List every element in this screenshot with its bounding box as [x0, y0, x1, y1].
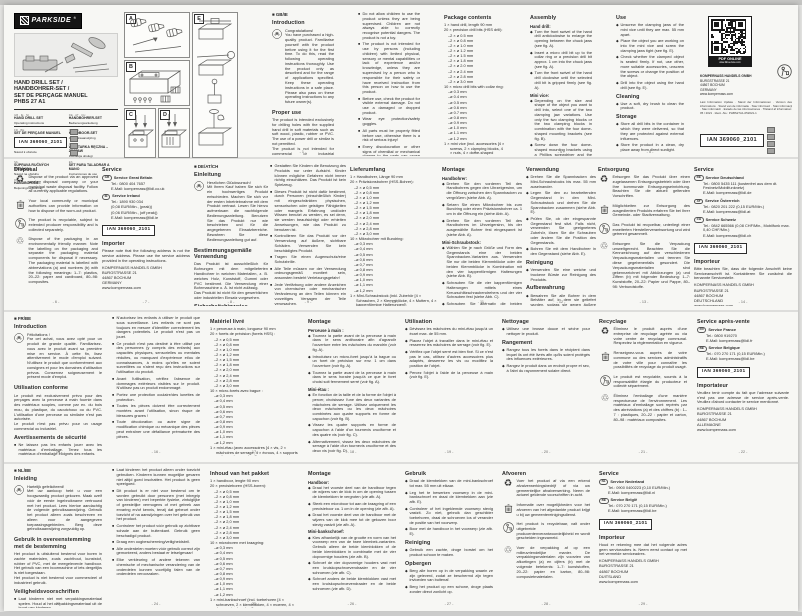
page-number: - 28 - [502, 602, 590, 607]
manual-page-panel: Recyclage♻Éliminez le produit auprès d'u… [599, 316, 687, 456]
step-bullet: ◆Leg het te bewerken voorwerp in de mini… [405, 491, 493, 505]
safety-bullet: ■Before use, check the product for visib… [358, 97, 420, 116]
safety-bullet: ■Tragen Sie einen Augenschutz/eine Schut… [270, 255, 346, 265]
packaging-triangle-icon: ♲ [502, 546, 514, 582]
step-bullet: ◆Check whether the clamped object is sea… [616, 55, 684, 79]
ian-number: IAN 369060_2101 [599, 519, 652, 530]
manual-page-panel: ■ FR/BEIntroductionFélicitations ! Par c… [14, 316, 102, 456]
figure-c: C [124, 108, 156, 158]
manual-page-panel: Matériel livré1 × perceuse à main, longu… [210, 316, 298, 456]
section-heading: Afvoeren [502, 471, 590, 478]
hand-drill-set-illustration [15, 34, 117, 76]
service-line: E-Mail: kompernass@lidl.co.uk [111, 187, 190, 192]
section-heading: Matériel livré [210, 319, 298, 326]
disposal-icon-row: ♲Dispose of the packaging in an environm… [14, 237, 98, 287]
safety-bullet: ■Kontrollieren Sie das Produkt vor der V… [270, 234, 346, 253]
page-number: - 9 - [270, 300, 346, 305]
bullet-text: Draag een oogbescherming/veiligheidsbril… [117, 540, 201, 545]
bullet-text: Prüfen Sie, ob der eingespannte Gegensta… [531, 217, 597, 246]
disposal-icon-row: The product is recyclable, subject to ex… [14, 218, 98, 234]
manual-page-panel: Use◆Unscrew the clamping jaws of the min… [616, 12, 684, 156]
country-code-badge: FR [697, 327, 706, 333]
bullet-text: Utilisez une brosse douce et sèche pour … [507, 327, 591, 337]
step-bullet: ◆Turn the front swivel of the hand drill… [530, 30, 592, 49]
step-bullet: ◆Bohren Sie mit dem Handbohrer in den Ge… [526, 247, 596, 257]
manual-page-panel: ■Do not allow children to use the produc… [358, 12, 420, 156]
page-number: - 24 - [112, 602, 200, 607]
service-entry: CHService SchweizTel.: 0842 665566 (0,08… [694, 217, 792, 238]
step-bullet: ◆Tournez la partie avant de la perceuse … [308, 334, 396, 353]
step-bullet: ◆Vissez les quatre supports en forme de … [308, 423, 396, 437]
list-line: www.kompernass.com [102, 286, 190, 291]
safety-bullet: ■Alle onderdelen moeten vóór gebruik cor… [112, 547, 200, 557]
language-header: ■ GB/IE [272, 12, 334, 17]
section-heading: Assembly [530, 15, 592, 22]
service-name: Service Deutschland [706, 176, 744, 181]
figure-d: D [158, 108, 190, 158]
page-number: - 18 - [308, 450, 396, 455]
step-bullet: ◆Draai de klembekken van de mini-banksch… [405, 479, 493, 489]
body-paragraph: Bitte beachten Sie, dass die folgende An… [694, 267, 792, 281]
service-name: Service Schweiz [706, 218, 736, 223]
step-bullet: ◆Drehen Sie den vorderen Teil des Handbo… [442, 219, 522, 238]
bullet-text: Before use, check the product for visibl… [363, 97, 421, 116]
manual-page-panel: MontagePerceuse à main :◆Tournez la part… [308, 316, 396, 456]
section-heading: Disposal [14, 167, 98, 174]
bullet-text: Bohren Sie mit dem Handbohrer in den Geg… [531, 247, 597, 257]
bullet-text: Drehen Sie die Spannbacken des Mini-Schr… [531, 175, 597, 189]
page-number: - 17 - [210, 450, 298, 455]
step-bullet: ◆Kies afhankelijk van de grootte en vorm… [308, 536, 396, 560]
bullet-text: Draai het voorste deel van de handboor t… [313, 486, 397, 500]
step-bullet: ◆Tournez la partie avant de la perceuse … [308, 371, 396, 385]
step-bullet: ◆Turn the front swivel of the hand drill… [530, 71, 592, 90]
body-paragraph: Éliminez le produit auprès d'une entrepr… [614, 327, 688, 346]
tidyman-icon [502, 522, 514, 543]
bullet-text: Rangez tous les forets dans le récipient… [507, 348, 591, 362]
language-header: ■ FR/BE [14, 316, 102, 321]
service-entry: BEService BelgiqueTel.: 070 270 171 (0,1… [697, 346, 789, 362]
bullet-text: En fonction de la taille et de la forme … [313, 393, 397, 422]
section-heading: Importeur [694, 259, 792, 266]
body-paragraph: The product is recyclable, subject to ex… [29, 218, 99, 232]
safety-bullet: ■Elke verkleuring of andere tekenen van … [112, 558, 200, 577]
step-bullet: ◆Draai het voorste deel van de handboor … [308, 513, 396, 527]
body-paragraph: Le produit est exclusivement prévu pour … [14, 394, 102, 432]
list-line: www.kompernass.com [697, 428, 789, 433]
bullet-text: The product is not intended for use by p… [363, 42, 421, 94]
bullet-text: Alle onderdelen moeten vóór gebruik corr… [117, 547, 201, 557]
step-bullet: ◆Dévissez les mâchoires du mini-étau jus… [405, 327, 493, 337]
step-bullet: ◆Vérifiez que l'objet serré est bien fix… [405, 350, 493, 369]
page-number: - 20 - [502, 450, 590, 455]
manual-page-panel: Afvoeren♻Voer het product af via een erk… [502, 468, 590, 608]
clamping-block-illustration [159, 109, 189, 157]
section-heading: Service [102, 167, 190, 174]
safety-bullet: ■Dieses Produkt ist nicht dafür bestimmt… [270, 190, 346, 233]
body-paragraph: Informatie over mogelijkheden voor het a… [517, 503, 591, 517]
step-bullet: ◆Percez l'objet à l'aide de la perceuse … [405, 371, 493, 381]
bullet-text: Vissez les quatre supports en forme de c… [313, 423, 397, 437]
bullet-text: Unscrew the clamping jaws of the mini vi… [621, 23, 685, 37]
bullet-text: Controleer het product vóór gebruik op z… [117, 524, 201, 538]
bullet-text: Vérifiez que l'objet serré est bien fixé… [410, 350, 494, 369]
bullet-text: Percez l'objet à l'aide de la perceuse à… [410, 371, 494, 381]
fold-line [4, 462, 798, 464]
recycling-arrows-icon: ♻ [14, 175, 26, 196]
figure-a: A [124, 12, 190, 58]
manual-page-panel: ServiceNLService NederlandTel.: 0900 040… [599, 468, 687, 608]
page-number: - 29 - [599, 602, 687, 607]
section-heading: Reinigung [526, 260, 596, 267]
bullet-text: Schroef de vier dopvormige houders vast … [313, 561, 397, 575]
manual-page-panel: ■ NL/BEInleidingHartelijk gefeliciteerd!… [14, 468, 102, 608]
page-number: - 16 - [112, 450, 200, 455]
ian-row: IAN 369060_2101 [694, 241, 792, 256]
list-line: www.kompernass.com [599, 580, 687, 585]
bullet-text: Check whether the clamped object is seat… [621, 55, 685, 79]
sub-heading: Perceuse à main : [308, 328, 396, 333]
ian-number: IAN 369060_2101 [102, 225, 155, 236]
service-line: Tel.: 0842 665566 (0,08 CHF/Min., Mobilf… [703, 224, 792, 234]
body-paragraph: Das Produkt ist ausschließlich für Bohru… [194, 262, 268, 300]
bullet-text: Do not allow children to use the product… [363, 12, 421, 41]
disposal-icon-row: ♻Entsorgen Sie das Produkt über einen zu… [598, 175, 690, 201]
section-heading: Inleiding [14, 476, 102, 483]
bullet-text: Verwenden Sie eine weiche und trockene B… [531, 268, 597, 282]
step-bullet: ◆Unscrew the clamping jaws of the mini v… [616, 23, 684, 37]
scanned-manual-sheet: PARKSIDE ® HAND DRILL SET [0, 0, 802, 616]
product-title-line: PHBS 27 A1 [14, 99, 118, 105]
service-name: Service Great Britain [114, 176, 153, 181]
cover-panel: PARKSIDE ® HAND DRILL SET [14, 12, 118, 156]
page-number: - 21 - [599, 450, 687, 455]
bullet-text: Insert a micro drill bit up to the colla… [535, 51, 593, 70]
disposal-icon-row: ♻Dispose of the product via an approved … [14, 175, 98, 196]
page-number: - 5 - [616, 150, 684, 155]
step-bullet: ◆Berg het product op een schone, droge p… [405, 585, 493, 595]
language-entry: GB · IE · NIHAND DRILL SETOperating inst… [14, 113, 63, 125]
step-bullet: ◆Verwenden Sie eine weiche und trockene … [526, 268, 596, 282]
body-paragraph: Renseignez-vous auprès de votre commune … [614, 351, 688, 370]
country-flag-icon [70, 150, 78, 156]
body-paragraph: Hartelijk gefeliciteerd! Met uw aankoop … [27, 485, 102, 533]
disposal-icon-row: Het product is recyclebaar, valt onder u… [502, 522, 590, 543]
section-heading: Use [616, 15, 684, 22]
ian-number: IAN 369060_2101 [694, 243, 747, 254]
parkside-logo: PARKSIDE ® [14, 13, 82, 29]
section-heading: Introduction [14, 324, 102, 331]
section-heading: Nettoyage [502, 319, 590, 326]
ian-row: IAN 369060_2101 [14, 126, 118, 156]
section-heading: Entsorgung [598, 167, 690, 174]
section-heading: Importer [102, 241, 190, 248]
bullet-text: Kontrollieren Sie das Produkt vor der Ve… [275, 234, 347, 253]
bullet-text: Controleer of het ingeklemde voorwerp st… [410, 507, 494, 526]
step-bullet: ◆Drill into the object using the hand dr… [616, 81, 684, 91]
step-bullet: ◆Berg alle boren op in de verpakking waa… [405, 569, 493, 583]
registered-mark: ® [74, 16, 77, 20]
step-bullet: ◆Controleer of het ingeklemde voorwerp s… [405, 507, 493, 526]
manual-page-panel: Verwendung◆Drehen Sie die Spannbacken de… [526, 164, 596, 306]
manual-page-panel: Gebruik◆Draai de klembekken van de mini-… [405, 468, 493, 608]
bullet-text: Dieses Produkt ist nicht dafür bestimmt,… [275, 190, 347, 233]
section-heading: Montage [308, 471, 396, 478]
bullet-text: Placez l'objet à travailler dans le mini… [410, 339, 494, 349]
service-line: E-Mail: kompernass@lidl.ch [703, 234, 792, 239]
qr-subcaption: www.lidl-service.com [709, 62, 751, 66]
bullet-text: Toutes les pièces doivent être correctem… [117, 404, 201, 418]
intro-row: Hartelijk gefeliciteerd! Met uw aankoop … [14, 485, 102, 535]
section-heading: Storage [616, 114, 684, 121]
page-number: - 11 - [442, 300, 522, 305]
page-number: - 12 - [526, 300, 596, 305]
step-bullet: ◆Utilisez une brosse douce et sèche pour… [502, 327, 590, 337]
service-entry: BEService BelgiëTel.: 070 270 171 (0,15 … [599, 498, 687, 514]
safety-bullet: ■Wear eye protection/safety goggles. [358, 117, 420, 127]
disposal-icon-row: Möglichkeiten zur Entsorgung des ausgedi… [598, 204, 690, 220]
waste-bin-icon [599, 351, 611, 372]
service-entry: GBService Great BritainTel.: 0800 404 76… [102, 175, 190, 191]
manual-page-panel: ■ GB/IEIntroductionCongratulations! You … [272, 12, 334, 156]
step-bullet: ◆Legen Sie den zu bearbeitenden Gegensta… [526, 191, 596, 215]
safety-bullet: ■Draag een oogbescherming/veiligheidsbri… [112, 540, 200, 545]
page-number: - 10 - [350, 300, 438, 305]
body-paragraph: Möglichkeiten zur Entsorgung des ausgedi… [613, 204, 691, 218]
waste-bin-icon [502, 503, 514, 519]
waste-bin-icon [598, 204, 610, 220]
language-entry: DE · AT · CHHANDBOHRER-SETBedienungsanle… [69, 113, 118, 125]
bullet-text: Leg het te bewerken voorwerp in de mini-… [410, 491, 494, 505]
step-bullet: ◆Use a soft, dry brush to clean the prod… [616, 102, 684, 112]
bullet-text: Drehen Sie den vorderen Teil des Handboh… [447, 219, 523, 238]
service-entry: IEService IrelandTel.: 1890 930 034(0,08… [102, 194, 190, 221]
country-flags-icon [767, 127, 783, 154]
section-heading: Proper use [272, 110, 334, 117]
bullet-text: Berg het product op een schone, droge pl… [410, 585, 494, 595]
body-paragraph: Congratulations! You have purchased a hi… [285, 29, 334, 105]
ian-row: IAN 369060_2101 [697, 365, 789, 380]
body-paragraph: Dispose of the packaging in an environme… [29, 237, 99, 285]
body-paragraph: Éliminez l'emballage d'une manière respe… [614, 394, 688, 423]
section-heading: Utilisation conforme [14, 385, 102, 392]
ian-row: IAN 369060_2101 [102, 223, 190, 238]
safety-bullet: ■Controleer het product vóór gebruik op … [112, 524, 200, 538]
back-cover-panel: PDF ONLINE www.lidl-service.com KOMPERNA… [700, 12, 792, 156]
step-bullet: ◆Depending on the size and shape of the … [530, 99, 592, 142]
page-number: - 3 - [444, 150, 506, 155]
manual-page-panel: Nettoyage◆Utilisez une brosse douce et s… [502, 316, 590, 456]
sub-heading: Handbohrer: [442, 176, 522, 181]
page-number: - 15 - [14, 450, 102, 455]
service-line: E-Mail: kompernass@lidl.ie [111, 216, 190, 221]
section-heading: Montage [442, 167, 522, 174]
safety-bullet: ■The product is not intended for use by … [358, 42, 420, 94]
manual-page-panel: Lieferumfang1 × Handbohrer, Länge 90 mm2… [350, 164, 438, 306]
safety-bullet: ■Dit product is er niet voor bestemd om … [112, 489, 200, 522]
fold-line [4, 310, 798, 312]
section-heading: Utilisation [405, 319, 493, 326]
ian-number: IAN 369060_2101 [700, 134, 764, 147]
bullet-text: Gebruik een zachte, droge borstel om het… [410, 548, 494, 558]
safety-bullet: ■Laat kinderen het product alleen onder … [112, 468, 200, 487]
disposal-icon-row: Informatie over mogelijkheden voor het a… [502, 503, 590, 519]
service-line: E-Mail: kompernass@lidl.at [703, 210, 792, 215]
step-bullet: ◆Gebruik een zachte, droge borstel om he… [405, 548, 493, 558]
page-number: - 23 - [14, 602, 102, 607]
recycling-arrows-icon: ♻ [598, 175, 610, 201]
body-paragraph: Please note that the following address i… [102, 249, 190, 263]
manual-page-panel: AssemblyHand drill:◆Turn the front swive… [530, 12, 592, 156]
step-bullet: ◆En fonction de la taille et de la forme… [308, 393, 396, 422]
manual-page-panel: Package contents1 × hand drill, length 9… [444, 12, 506, 156]
bullet-text: Drill into the object using the hand dri… [621, 81, 685, 91]
disposal-icon-row: ♻Éliminez le produit auprès d'une entrep… [599, 327, 687, 348]
sub-heading: Hand drill: [530, 24, 592, 29]
safety-bullet: ■Alle Teile müssen vor der Verwendung or… [270, 267, 346, 281]
page-number: - 6 - [14, 300, 98, 305]
bullet-text: Laat kinderen het product alleen onder t… [117, 468, 201, 487]
service-entry: NLService NederlandTel.: 0900 0400223 (0… [599, 479, 687, 495]
section-heading: Cleaning [616, 94, 684, 101]
disposal-icon-row: ♲Voer de verpakking af op een milieuvrie… [502, 546, 590, 582]
section-heading: Einleitung [194, 172, 268, 179]
manual-page-panel: ■Laat kinderen het product alleen onder … [112, 468, 200, 608]
packaging-triangle-icon: ♲ [14, 237, 26, 287]
country-flag-icon [70, 143, 78, 149]
disposal-icon-row: Your local community or municipal author… [14, 199, 98, 215]
body-paragraph: Herzlichen Glückwunsch! Mit Ihrem Kauf h… [207, 181, 268, 243]
safety-bullet: ■N'autorisez les enfants à utiliser le p… [112, 316, 200, 340]
service-line: E-Mail: kompernass@lidl.fr [706, 339, 789, 344]
disposal-icon-row: ♲Entsorgen Sie die Verpackung umweltgere… [598, 242, 690, 292]
safety-bullet: ■Avant l'utilisation, vérifiez l'absence… [112, 377, 200, 391]
section-heading: Package contents [444, 15, 506, 22]
service-line: E-Mail: kompernass@lidl.nl [608, 491, 687, 496]
bullet-text: Draai het voorste deel van de handboor m… [313, 513, 397, 527]
hands-pictogram-icon [14, 333, 25, 383]
figure-e: E [192, 12, 238, 158]
ian-number: IAN 369060_2101 [697, 367, 750, 378]
ian-row: IAN 369060_2101 [599, 517, 687, 532]
sub-heading: Mini-bankschroef: [308, 529, 396, 534]
section-heading: Aufbewahrung [526, 285, 596, 292]
safety-bullet: ■Do not allow children to use the produc… [358, 12, 420, 41]
brand-name: PARKSIDE [32, 17, 72, 24]
page-number: - 25 - [210, 602, 298, 607]
bullet-text: Drehen Sie den vorderen Teil des Handboh… [447, 182, 523, 201]
address-line: GERMANY [700, 88, 792, 92]
section-heading: Lieferumfang [350, 167, 438, 174]
ian-row: IAN 369060_2101 [700, 127, 783, 154]
qr-pdf-badge: PDF ONLINE www.lidl-service.com [708, 16, 752, 67]
body-paragraph: Le produit est recyclable, soumis à la r… [614, 375, 688, 389]
section-heading: Avertissements de sécurité [14, 435, 102, 442]
bullet-text: Ce produit n'est pas destiné à être util… [117, 342, 201, 375]
section-heading: Rangement [502, 340, 590, 347]
step-bullet: ◆Placez l'objet à travailler dans le min… [405, 339, 493, 349]
body-paragraph: Entsorgen Sie die Verpackung umweltgerec… [613, 242, 691, 290]
recycling-arrows-icon: ♻ [599, 327, 611, 348]
safety-bullet: ■Portez une protection oculaire/des lune… [112, 393, 200, 403]
body-paragraph: Dispose of the product via an approved w… [29, 175, 99, 194]
service-entry: ATService ÖsterreichTel.: 0820 201 222 (… [694, 199, 792, 215]
country-flags-icon [70, 129, 86, 156]
body-paragraph: Félicitations ! Par cet achat, vous avez… [27, 333, 102, 381]
waste-bin-icon [14, 199, 26, 215]
service-entry: FRService FranceTel.: 0800 919270E-Mail:… [697, 327, 789, 343]
manual-page-panel: Utilisation◆Dévissez les mâchoires du mi… [405, 316, 493, 456]
bullet-text: Draai de klembekken van de mini-bankschr… [410, 479, 494, 489]
step-bullet: ◆Wählen Sie je nach Größe und Form des G… [442, 246, 522, 279]
service-name: Service France [708, 328, 736, 333]
bullet-text: Turn the front swivel of the hand drill … [535, 71, 593, 90]
safety-bullet: ■Gestatten Sie Kindern die Benutzung des… [270, 164, 346, 188]
packaging-triangle-icon: ♲ [599, 394, 611, 425]
drilling-steps-illustration [193, 13, 237, 157]
section-heading: Veiligheidsvoorschriften [14, 589, 102, 596]
bullet-text: Kies afhankelijk van de grootte en vorm … [313, 536, 397, 560]
address-line: BURGSTRASSE 21 [700, 79, 792, 83]
service-line: E-Mail: kompernass@lidl.be [706, 357, 789, 362]
service-entry: DEService DeutschlandTel.: 0800 5435 111… [694, 175, 792, 196]
body-paragraph: Das Produkt ist recycelbar, unterliegt e… [613, 223, 691, 237]
bullet-text: Dévissez les mâchoires du mini-étau jusq… [410, 327, 494, 337]
disposal-icon-row: ♻Voer het product af via een erkend afva… [502, 479, 590, 500]
figures-panel: A B [124, 12, 236, 156]
bullet-text: Turn the front swivel of the hand drill … [535, 30, 593, 49]
step-bullet: ◆Setzen Sie einen Mikrobohrer bis zum Bu… [442, 203, 522, 217]
bullet-text: Berg alle boren op in de verpakking waar… [410, 569, 494, 583]
intro-row: Congratulations! You have purchased a hi… [272, 29, 334, 107]
tidyman-icon [14, 218, 26, 234]
manual-page-panel: Service après-venteFRService FranceTel.:… [697, 316, 789, 456]
body-paragraph: Your local community or municipal author… [29, 199, 99, 213]
bullet-text: Setzen Sie einen Mikrobohrer bis zum Bun… [447, 203, 523, 217]
bullet-text: Schroef anders de beide klemblokken vast… [313, 577, 397, 591]
disposal-icon-row: Das Produkt ist recycelbar, unterliegt e… [598, 223, 690, 239]
bullet-text: Wear eye protection/safety goggles. [363, 117, 421, 127]
body-paragraph: Het product is recyclebaar, valt onder u… [517, 522, 591, 541]
manual-page-panel: ServiceGBService Great BritainTel.: 0800… [102, 164, 190, 306]
section-heading: Service après-vente [697, 319, 789, 326]
tidyman-icon [777, 64, 792, 79]
address-line: 44867 BOCHUM [700, 83, 792, 87]
sub-heading: Mini vice: [530, 93, 592, 98]
bullet-text: Rangez le produit dans un endroit propre… [507, 364, 591, 374]
bullet-text: Elke verkleuring of andere tekenen van c… [117, 558, 201, 577]
language-header: ■ NL/BE [14, 468, 102, 473]
version-info: Last Information Update · Stand der Info… [700, 101, 792, 116]
page-number: - 8 - [194, 300, 268, 305]
chuck-and-bits-illustration [125, 13, 189, 57]
page-number: - 13 - [598, 300, 690, 305]
recycling-arrows-icon: ♻ [502, 479, 514, 500]
hands-pictogram-icon [194, 181, 205, 245]
vice-and-accessories-illustration [125, 61, 189, 105]
bullet-text: Alle Teile müssen vor der Verwendung ord… [275, 267, 347, 281]
intro-row: Herzlichen Glückwunsch! Mit Ihrem Kauf h… [194, 181, 268, 245]
section-heading: Importeur [599, 535, 687, 542]
body-paragraph: Veuillez tenir compte du fait que l'adre… [697, 391, 789, 405]
section-heading: Opbergen [405, 561, 493, 568]
section-heading: Service [694, 167, 792, 174]
country-flag-icon [70, 129, 78, 135]
manual-page-panel: Entsorgung♻Entsorgen Sie das Produkt übe… [598, 164, 690, 306]
hands-pictogram-icon [272, 29, 283, 107]
brand-stripes-icon [20, 16, 29, 25]
step-bullet: ◆Drehen Sie die Spannbacken des Mini-Sch… [526, 175, 596, 189]
